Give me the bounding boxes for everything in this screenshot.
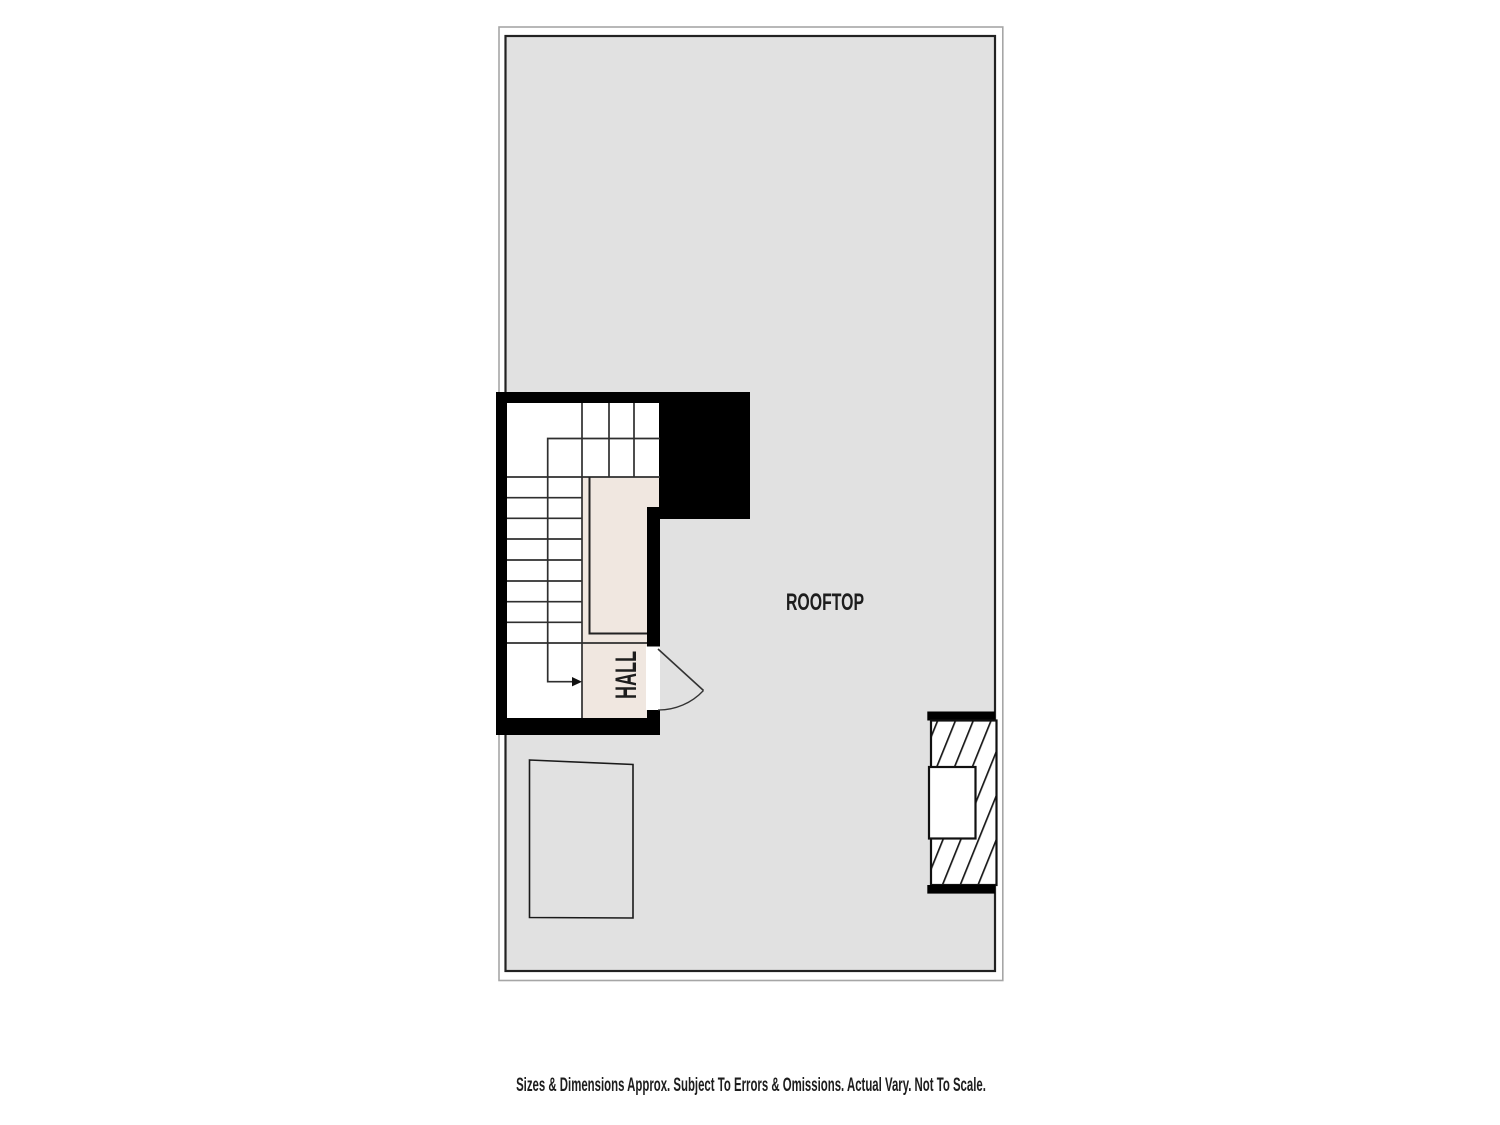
floorplan-page: ROOFTOP HALL Sizes & Dimensions Approx. … bbox=[0, 0, 1500, 1125]
floorplan-drawing bbox=[0, 0, 1500, 1125]
room-label-rooftop: ROOFTOP bbox=[786, 589, 864, 617]
disclaimer-text: Sizes & Dimensions Approx. Subject To Er… bbox=[516, 1075, 986, 1097]
room-label-hall: HALL bbox=[610, 651, 644, 699]
hatch-top-cap bbox=[927, 712, 995, 721]
door-opening bbox=[646, 647, 660, 711]
roof-hatch-structure bbox=[927, 712, 996, 894]
hatch-bottom-cap bbox=[927, 885, 995, 894]
hatch-inner-box bbox=[929, 767, 976, 839]
